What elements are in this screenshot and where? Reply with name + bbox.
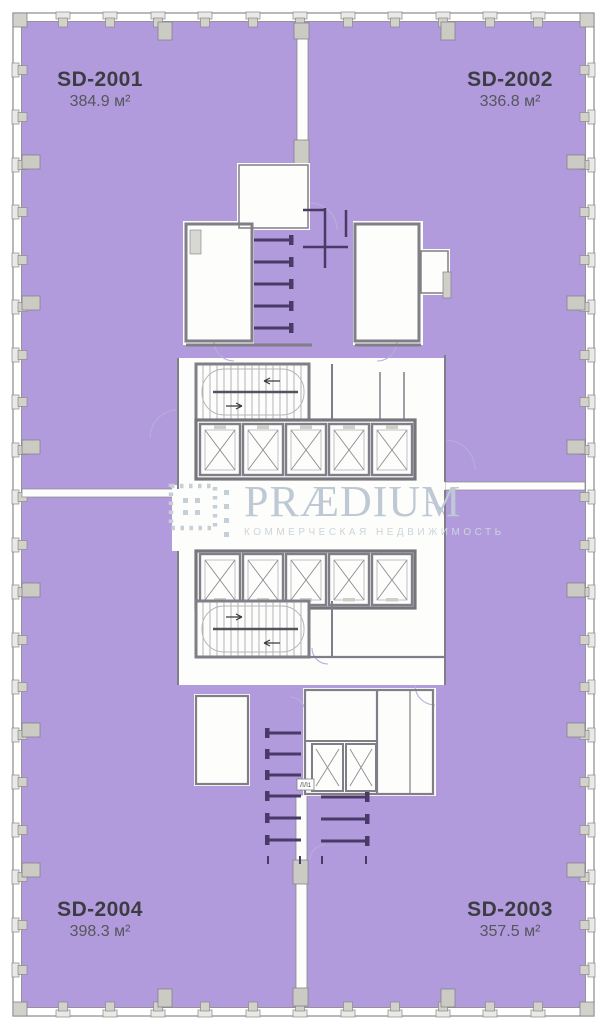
unit-label-sd-2002[interactable]: SD-2002 336.8 м² — [435, 68, 585, 111]
unit-area: 357.5 м² — [435, 922, 585, 941]
praedium-watermark: PRÆDIUM КОММЕРЧЕСКАЯ НЕДВИЖИМОСТЬ — [166, 480, 505, 538]
unit-id: SD-2003 — [435, 898, 585, 922]
unit-id: SD-2001 — [25, 68, 175, 92]
floor-plan-page: ЛЛ1 — [0, 0, 610, 1029]
unit-area: 336.8 м² — [435, 92, 585, 111]
unit-label-sd-2001[interactable]: SD-2001 384.9 м² — [25, 68, 175, 111]
unit-area: 384.9 м² — [25, 92, 175, 111]
watermark-brand: PRÆDIUM — [244, 480, 505, 524]
unit-id: SD-2004 — [25, 898, 175, 922]
unit-area: 398.3 м² — [25, 922, 175, 941]
unit-label-sd-2003[interactable]: SD-2003 357.5 м² — [435, 898, 585, 941]
unit-label-sd-2004[interactable]: SD-2004 398.3 м² — [25, 898, 175, 941]
watermark-tagline: КОММЕРЧЕСКАЯ НЕДВИЖИМОСТЬ — [244, 527, 505, 538]
unit-id: SD-2002 — [435, 68, 585, 92]
praedium-logo-icon — [166, 480, 232, 538]
